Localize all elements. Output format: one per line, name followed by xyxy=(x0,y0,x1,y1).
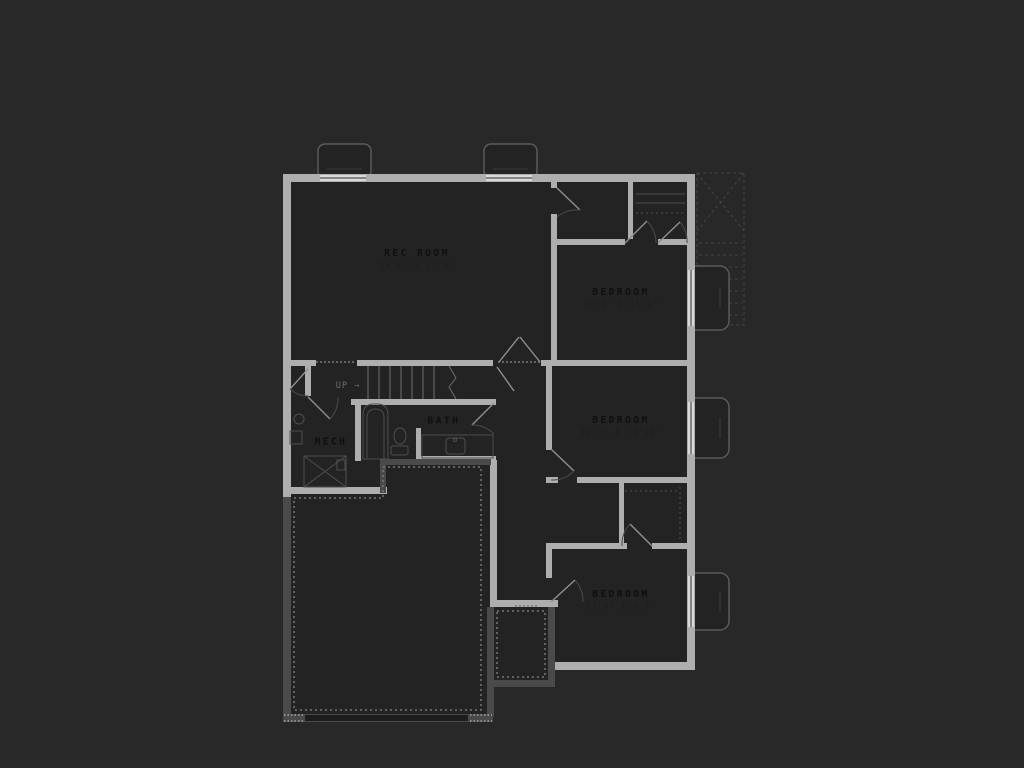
bedroom-2-label: BEDROOM 12'3" X 10'10" xyxy=(580,415,661,439)
bath-label: BATH xyxy=(428,416,461,429)
window-well-top-left xyxy=(318,144,371,178)
stairs-up-arrow-icon: → xyxy=(354,381,360,391)
room-dimensions: 11'0" X 9'7" xyxy=(586,602,656,613)
unfinished-floor-area xyxy=(290,463,491,718)
room-name: REC ROOM xyxy=(379,248,455,261)
room-name: BEDROOM xyxy=(580,415,661,428)
floor-plan-drawing xyxy=(0,0,1024,768)
floor-plan-canvas: REC ROOM 25'5" X 17'0" BEDROOM 12'3" X 1… xyxy=(0,0,1024,768)
mech-label: MECH xyxy=(315,437,348,450)
room-name: BATH xyxy=(428,416,461,429)
room-name: BEDROOM xyxy=(583,287,659,300)
bedroom-1-label: BEDROOM 12'3" X 11'6" xyxy=(583,287,659,311)
room-name: BEDROOM xyxy=(586,589,656,602)
storage-floor-area xyxy=(493,605,552,685)
room-dimensions: 25'5" X 17'0" xyxy=(379,261,455,272)
room-dimensions: 12'3" X 10'10" xyxy=(580,428,661,439)
stairs-up-text: UP xyxy=(336,381,348,391)
bedroom-3-label: BEDROOM 11'0" X 9'7" xyxy=(586,589,656,613)
room-name: MECH xyxy=(315,437,348,450)
window-well-top-right xyxy=(484,144,537,178)
room-dimensions: 12'3" X 11'6" xyxy=(583,300,659,311)
stairs-up-label: UP → xyxy=(336,381,361,391)
rec-room-label: REC ROOM 25'5" X 17'0" xyxy=(379,248,455,272)
